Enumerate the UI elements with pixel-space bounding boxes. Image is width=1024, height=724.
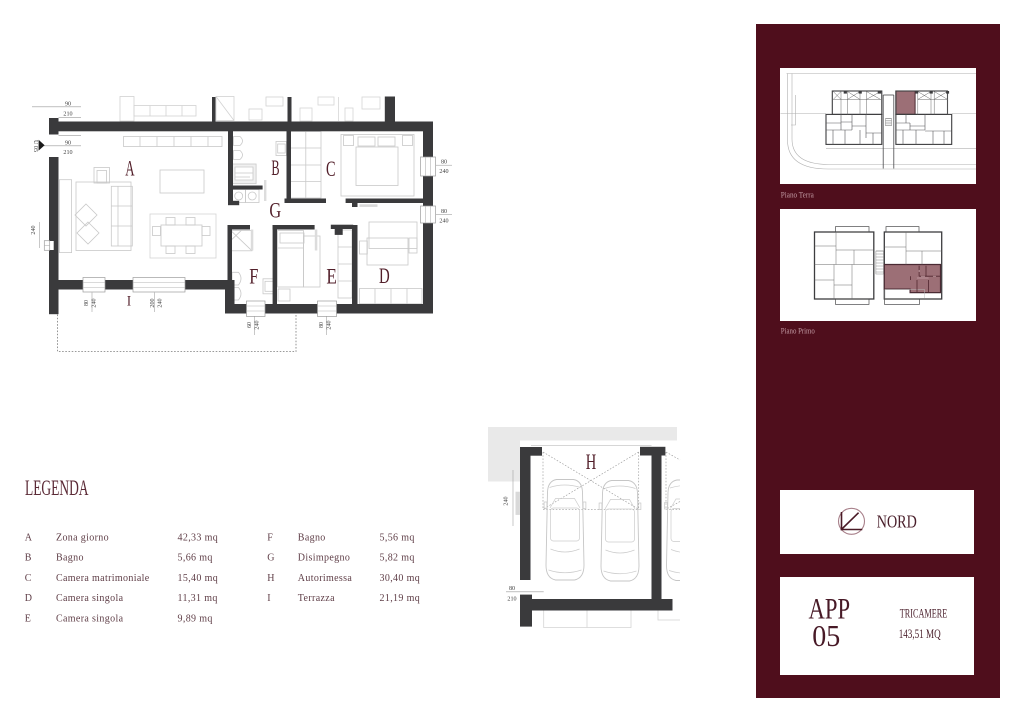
svg-text:90: 90 [65, 140, 71, 146]
svg-text:TRICAMERE: TRICAMERE [900, 606, 948, 620]
svg-text:Piano Terra: Piano Terra [781, 189, 814, 199]
svg-text:Disimpegno: Disimpegno [298, 553, 350, 564]
svg-text:Autorimessa: Autorimessa [298, 573, 353, 584]
svg-text:30,40 mq: 30,40 mq [380, 573, 421, 584]
svg-text:C: C [25, 573, 32, 584]
svg-text:Camera singola: Camera singola [56, 613, 124, 624]
svg-text:I: I [127, 293, 131, 309]
svg-text:5,82 mq: 5,82 mq [380, 553, 415, 564]
svg-text:240: 240 [439, 219, 448, 225]
svg-text:Piano Primo: Piano Primo [781, 326, 815, 336]
svg-text:Zona giorno: Zona giorno [56, 533, 109, 544]
svg-text:210: 210 [507, 597, 516, 603]
svg-text:200: 200 [150, 298, 156, 307]
svg-text:42,33 mq: 42,33 mq [178, 533, 219, 544]
svg-text:Camera singola: Camera singola [56, 593, 124, 604]
svg-text:G: G [269, 198, 281, 223]
svg-text:80: 80 [441, 160, 447, 166]
svg-text:D: D [379, 263, 390, 288]
svg-text:11,31 mq: 11,31 mq [178, 593, 218, 604]
svg-text:5,56 mq: 5,56 mq [380, 533, 415, 544]
svg-text:H: H [267, 573, 275, 584]
svg-text:240: 240 [504, 496, 510, 505]
svg-text:80: 80 [84, 300, 90, 306]
svg-text:240: 240 [255, 320, 261, 329]
svg-text:H: H [586, 449, 597, 474]
svg-text:NORD: NORD [877, 512, 917, 532]
svg-text:U 05: U 05 [32, 140, 38, 152]
svg-text:5,66 mq: 5,66 mq [178, 553, 213, 564]
svg-text:F: F [249, 264, 258, 289]
svg-text:Bagno: Bagno [56, 553, 84, 564]
svg-text:Terrazza: Terrazza [298, 593, 335, 604]
svg-text:B: B [25, 553, 32, 564]
svg-text:210: 210 [63, 111, 72, 117]
svg-text:240: 240 [439, 169, 448, 175]
svg-text:15,40 mq: 15,40 mq [178, 573, 219, 584]
svg-text:90: 90 [65, 102, 71, 108]
svg-text:05: 05 [812, 619, 840, 653]
svg-text:240: 240 [31, 225, 37, 234]
svg-text:80: 80 [319, 322, 325, 328]
svg-text:Camera matrimoniale: Camera matrimoniale [56, 573, 150, 584]
svg-text:G: G [267, 553, 275, 564]
svg-text:LEGENDA: LEGENDA [25, 475, 89, 500]
svg-text:21,19 mq: 21,19 mq [380, 593, 421, 604]
svg-text:143,51 MQ: 143,51 MQ [899, 627, 941, 641]
svg-text:240: 240 [158, 298, 164, 307]
svg-text:E: E [326, 264, 337, 289]
svg-text:Bagno: Bagno [298, 533, 326, 544]
svg-text:210: 210 [63, 150, 72, 156]
svg-text:B: B [271, 155, 279, 180]
svg-text:60: 60 [247, 322, 253, 328]
svg-text:E: E [25, 613, 31, 624]
svg-text:80: 80 [441, 209, 447, 215]
svg-text:240: 240 [92, 298, 98, 307]
svg-text:80: 80 [509, 586, 515, 592]
svg-text:9,89 mq: 9,89 mq [178, 613, 213, 624]
svg-text:D: D [25, 593, 33, 604]
svg-text:240: 240 [327, 320, 333, 329]
svg-text:A: A [25, 533, 33, 544]
svg-text:C: C [326, 156, 336, 181]
svg-text:I: I [267, 593, 271, 604]
svg-text:A: A [125, 155, 134, 180]
svg-text:F: F [267, 533, 273, 544]
